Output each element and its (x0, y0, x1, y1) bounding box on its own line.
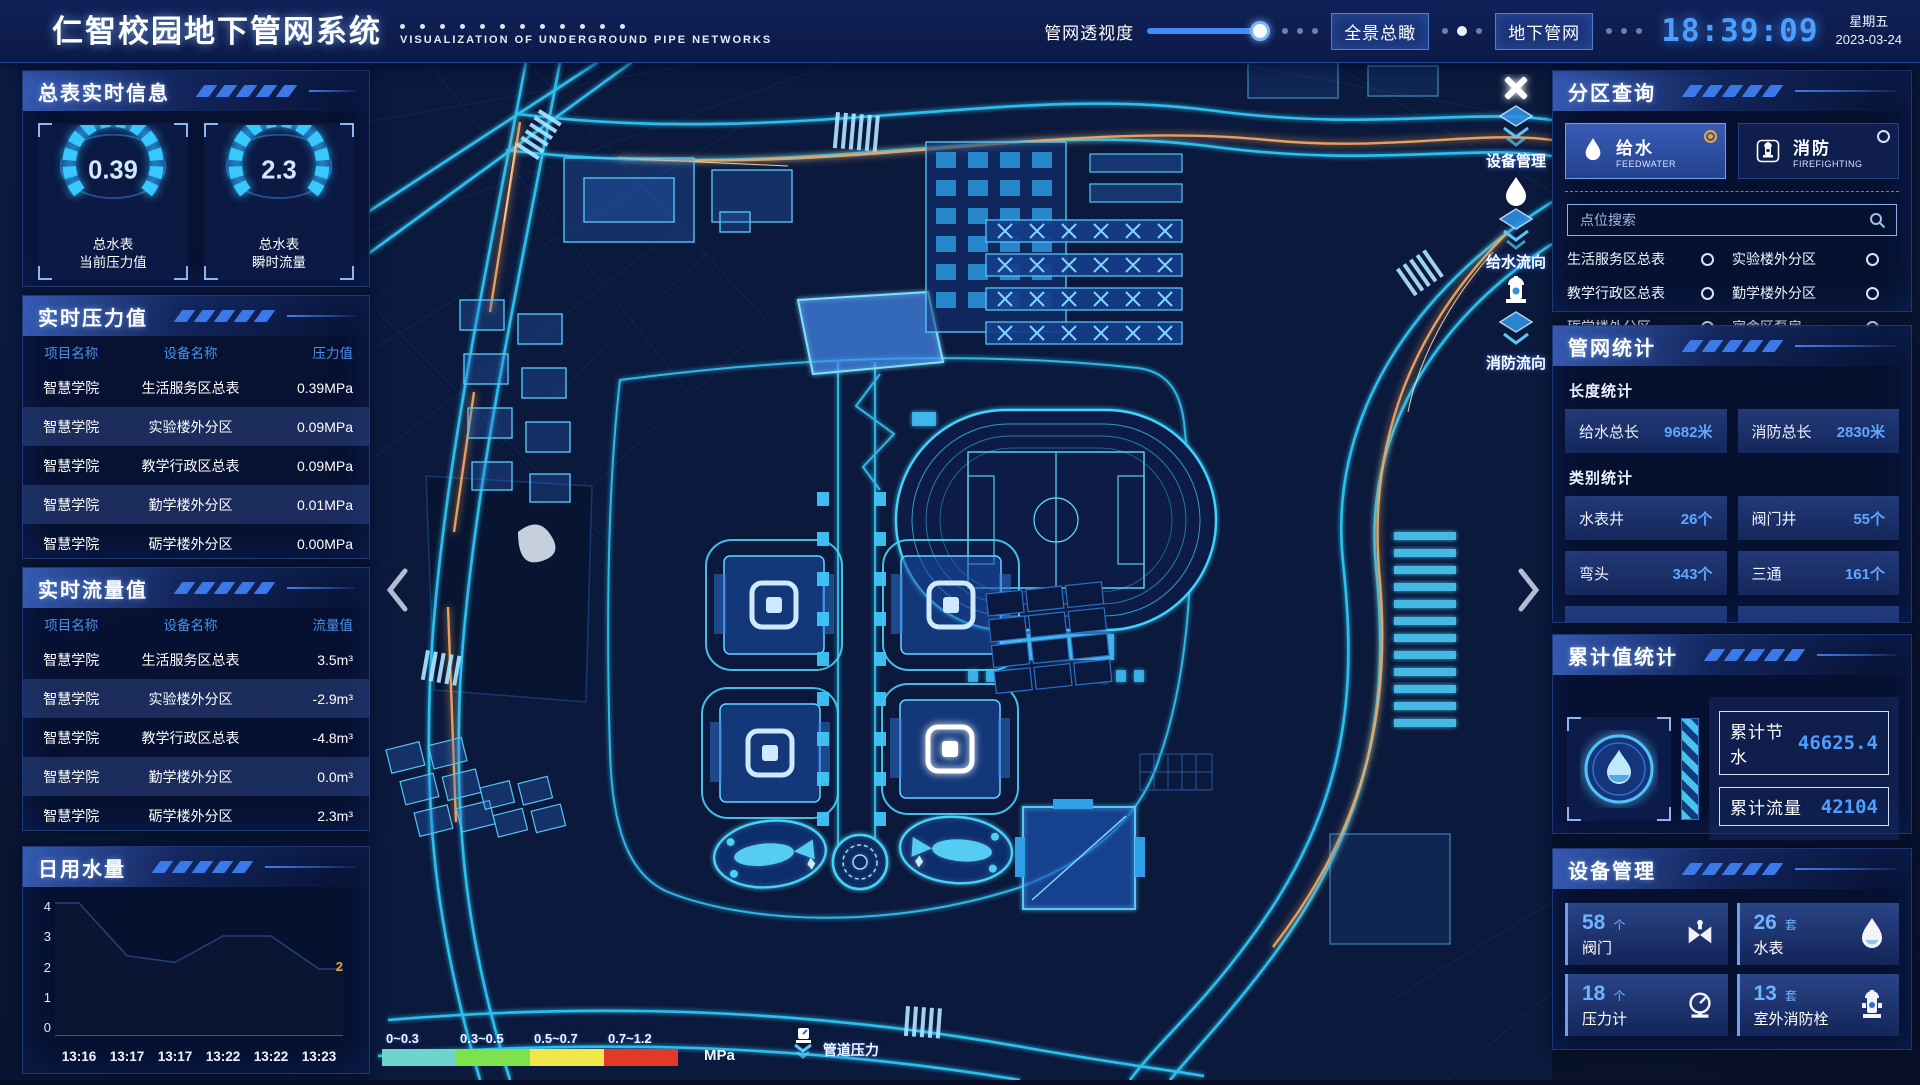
device-management-panel: 设备管理 58个阀门 26套水表 18个压力计 13套室外消防栓 (1552, 848, 1912, 1050)
water-drop-icon (1857, 917, 1887, 951)
stat-feedwater-length: 给水总长9682米 (1565, 409, 1727, 453)
panel-title: 实时压力值 (38, 302, 148, 331)
map-next-arrow[interactable] (1516, 567, 1542, 618)
gym-building (1015, 799, 1145, 909)
stat-valve-wells: 阀门井55个 (1738, 496, 1900, 540)
length-stats-label: 长度统计 (1569, 380, 1911, 401)
table-row: 智慧学院实验楼外分区-2.9m³ (23, 679, 369, 718)
pipe-pressure-icon (791, 1027, 815, 1066)
stat-elbows: 弯头343个 (1565, 551, 1727, 595)
pressure-gauge: 0.39 总水表 当前压力值 (38, 123, 188, 280)
table-row: 智慧学院生活服务区总表0.39MPa (23, 368, 369, 407)
tab-firefighting[interactable]: 消防FIREFIGHTING (1738, 123, 1899, 179)
app-title: 仁智校园地下管网系统 (52, 16, 382, 47)
daily-water-chart: 43210 13:1613:1713:1713:2213:2213:23 2 (29, 899, 357, 1036)
hydrant-icon (1857, 989, 1887, 1021)
marker-label: 给水流向 (1486, 251, 1546, 272)
title-dots (400, 24, 772, 29)
marker-label: 消防流向 (1486, 352, 1546, 373)
pipe-pressure-label: 管道压力 (823, 1040, 879, 1060)
pipe-stats-panel: 管网统计 长度统计 给水总长9682米 消防总长2830米 类别统计 水表井26… (1552, 325, 1912, 623)
table-row: 智慧学院砺学楼外分区2.3m³ (23, 796, 369, 826)
top-bar: 仁智校园地下管网系统 VISUALIZATION OF UNDERGROUND … (0, 0, 1920, 63)
point-radio (1866, 253, 1879, 266)
divider-dots (1442, 26, 1482, 36)
legend-range-label: 0.5~0.7 (530, 1031, 604, 1046)
tab-radio (1704, 130, 1717, 143)
category-stats-label: 类别统计 (1569, 467, 1911, 488)
legend-segment: 0.3~0.5 (456, 1031, 530, 1066)
date: 2023-03-24 (1836, 31, 1903, 49)
gauge-label: 总水表 当前压力值 (38, 236, 188, 272)
panel-title: 实时流量值 (38, 574, 148, 603)
table-row: 智慧学院教学行政区总表-4.8m³ (23, 718, 369, 757)
y-axis-labels: 43210 (29, 899, 55, 1035)
gauge-value: 0.39 (88, 157, 138, 185)
device-management-marker[interactable]: 设备管理 (1486, 74, 1546, 171)
legend-unit: MPa (704, 1047, 735, 1064)
dashed-divider (1565, 191, 1899, 192)
gauge-label: 总水表 瞬时流量 (204, 236, 354, 272)
panel-title: 日用水量 (38, 853, 126, 882)
slash-deco (1708, 649, 1801, 661)
pressure-table: 项目名称 设备名称 压力值 智慧学院生活服务区总表0.39MPa 智慧学院实验楼… (23, 336, 369, 554)
feedwater-flow-marker[interactable]: 给水流向 (1486, 175, 1546, 272)
date-block: 星期五 2023-03-24 (1836, 13, 1903, 49)
search-icon (1869, 212, 1886, 229)
hazard-stripe-deco (1681, 718, 1699, 820)
legend-segment: 0.7~1.2 (604, 1031, 678, 1066)
flow-table: 项目名称 设备名称 流量值 智慧学院生活服务区总表3.5m³ 智慧学院实验楼外分… (23, 608, 369, 826)
search-input[interactable] (1578, 211, 1844, 229)
stat-meter-wells: 水表井26个 (1565, 496, 1727, 540)
legend-range-label: 0.3~0.5 (456, 1031, 530, 1046)
pressure-gauge-icon (1684, 989, 1716, 1021)
map-prev-arrow[interactable] (384, 567, 410, 618)
hydrant-icon (1486, 276, 1546, 354)
realtime-pressure-panel: 实时压力值 项目名称 设备名称 压力值 智慧学院生活服务区总表0.39MPa 智… (22, 295, 370, 559)
stat-fire-length: 消防总长2830米 (1738, 409, 1900, 453)
map-marker-stack: 设备管理 给水流向 消防流向 (1486, 74, 1546, 373)
chart-end-value: 2 (336, 959, 343, 974)
realtime-flow-panel: 实时流量值 项目名称 设备名称 流量值 智慧学院生活服务区总表3.5m³ 智慧学… (22, 567, 370, 831)
stat-tees: 三通161个 (1738, 551, 1900, 595)
device-card-water-meters[interactable]: 26套水表 (1737, 903, 1900, 965)
clock: 18:39:09 (1661, 13, 1818, 49)
panel-title: 累计值统计 (1568, 641, 1678, 670)
stat-clipped (1738, 606, 1900, 623)
table-row: 智慧学院生活服务区总表3.5m³ (23, 640, 369, 679)
panel-title: 分区查询 (1568, 77, 1656, 106)
campus-map-canvas (368, 62, 1552, 1080)
stat-clipped (1565, 606, 1727, 623)
slash-deco (200, 85, 293, 97)
legend-segment: 0.5~0.7 (530, 1031, 604, 1066)
x-axis-labels: 13:1613:1713:1713:2213:2213:23 (55, 1049, 343, 1064)
gauge-value: 2.3 (261, 157, 297, 185)
water-drop-icon (1582, 137, 1604, 165)
divider-dots (1282, 28, 1318, 34)
wrench-icon (1486, 74, 1546, 152)
table-row: 智慧学院砺学楼外分区0.00MPa (23, 524, 369, 554)
hydrant-icon (1755, 138, 1781, 164)
zone-query-panel: 分区查询 给水FEEDWATER 消防FIREFIGHTING (1552, 70, 1912, 312)
device-card-hydrants[interactable]: 13套室外消防栓 (1737, 974, 1900, 1036)
legend-range-label: 0.7~1.2 (604, 1031, 678, 1046)
cumulative-flow-field: 累计流量 42104 (1719, 787, 1889, 826)
water-saving-icon-box (1567, 717, 1671, 821)
dashboard: 设备管理 给水流向 消防流向 (0, 0, 1920, 1080)
tab-radio (1877, 130, 1890, 143)
slash-deco (1686, 863, 1779, 875)
panel-title: 总表实时信息 (38, 77, 170, 106)
cumulative-stats-panel: 累计值统计 累计节水 46625.4 累计流量 (1552, 634, 1912, 834)
fire-flow-marker[interactable]: 消防流向 (1486, 276, 1546, 373)
water-drop-icon (1486, 175, 1546, 253)
app-subtitle: VISUALIZATION OF UNDERGROUND PIPE NETWOR… (400, 34, 772, 46)
flow-gauge: 2.3 总水表 瞬时流量 (204, 123, 354, 280)
divider-dots (1606, 28, 1642, 34)
gauge-dial: 2.3 (204, 125, 354, 237)
area-chart-canvas (55, 899, 343, 1035)
point-item[interactable]: 实验楼外分区 (1732, 249, 1897, 269)
device-card-valves[interactable]: 58个阀门 (1565, 903, 1728, 965)
water-drop-badge-icon (1580, 730, 1658, 808)
device-card-pressure-gauges[interactable]: 18个压力计 (1565, 974, 1728, 1036)
valve-icon (1684, 918, 1716, 950)
slash-deco (178, 310, 271, 322)
meter-info-panel: 总表实时信息 0.39 总水表 当前压力值 (22, 70, 370, 287)
point-radio (1701, 287, 1714, 300)
gauge-dial: 0.39 (38, 125, 188, 237)
table-row: 智慧学院实验楼外分区0.09MPa (23, 407, 369, 446)
point-list: 生活服务区总表 实验楼外分区 教学行政区总表 勤学楼外分区 砺学楼外分区 宿舍区… (1567, 242, 1897, 328)
table-header: 项目名称 设备名称 流量值 (23, 608, 369, 640)
panel-title: 设备管理 (1568, 855, 1656, 884)
overview-button[interactable]: 全景总瞰 (1331, 13, 1429, 50)
slash-deco (156, 861, 249, 873)
daily-water-panel: 日用水量 43210 13:1613:1713:1713:2213:2213:2… (22, 846, 370, 1074)
slash-deco (178, 582, 271, 594)
pipe-opacity-label: 管网透视度 (1044, 19, 1134, 44)
marker-label: 设备管理 (1486, 150, 1546, 171)
slash-deco (1686, 85, 1779, 97)
legend-segment: 0~0.3 (382, 1031, 456, 1066)
slash-deco (1686, 340, 1779, 352)
point-item[interactable]: 教学行政区总表 (1567, 283, 1732, 303)
point-item[interactable]: 勤学楼外分区 (1732, 283, 1897, 303)
campus-map[interactable]: 设备管理 给水流向 消防流向 (368, 62, 1552, 1080)
tab-feedwater[interactable]: 给水FEEDWATER (1565, 123, 1726, 179)
point-item[interactable]: 生活服务区总表 (1567, 249, 1732, 269)
pipe-opacity-slider[interactable] (1147, 21, 1269, 41)
table-row: 智慧学院教学行政区总表0.09MPa (23, 446, 369, 485)
weekday: 星期五 (1836, 13, 1903, 31)
point-radio (1701, 253, 1714, 266)
table-row: 智慧学院勤学楼外分区0.0m³ (23, 757, 369, 796)
point-radio (1866, 287, 1879, 300)
underground-button[interactable]: 地下管网 (1495, 13, 1593, 50)
slider-handle[interactable] (1250, 21, 1270, 41)
panel-title: 管网统计 (1568, 332, 1656, 361)
table-header: 项目名称 设备名称 压力值 (23, 336, 369, 368)
legend-range-label: 0~0.3 (382, 1031, 456, 1046)
point-search[interactable] (1567, 204, 1897, 236)
table-row: 智慧学院勤学楼外分区0.01MPa (23, 485, 369, 524)
pressure-legend: 0~0.3 0.3~0.5 0.5~0.7 0.7~1.2 MPa 管道压力 (382, 1027, 879, 1066)
cumulative-saving-field: 累计节水 46625.4 (1719, 711, 1889, 775)
